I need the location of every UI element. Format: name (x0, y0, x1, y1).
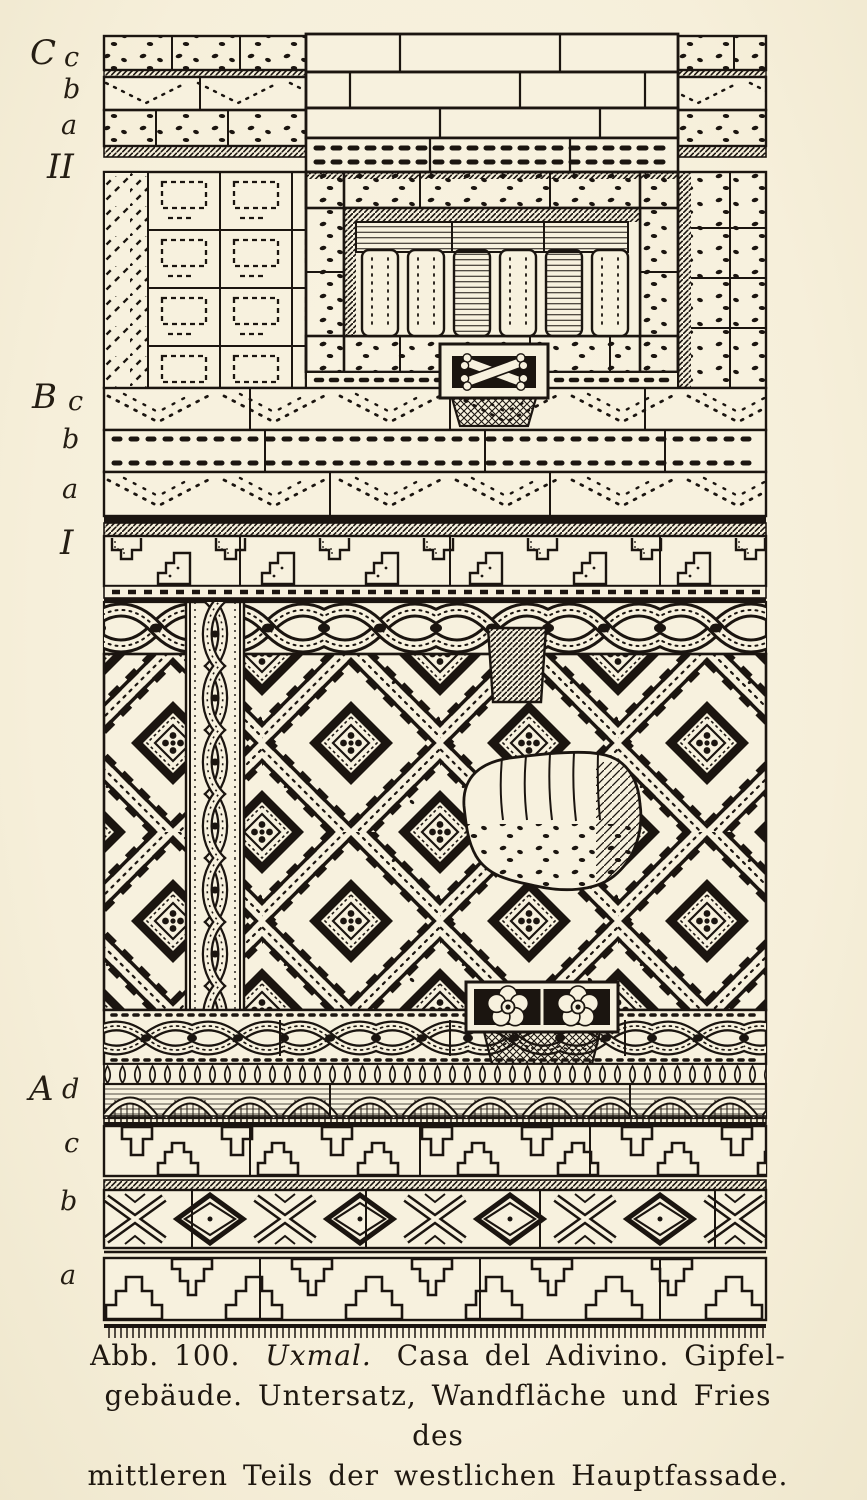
band-B (104, 388, 766, 536)
zone-label-I: I (60, 526, 73, 560)
ashlar-cornice (306, 34, 678, 172)
caption-line-1: Abb. 100. Uxmal. Casa del Adivino. Gipfe… (80, 1336, 796, 1376)
braided-column (186, 602, 244, 1010)
stone-tenon (488, 628, 546, 702)
book-page: C c b a II B c b a I A d c b a (0, 0, 867, 1500)
band-A-a (104, 1258, 766, 1320)
zone-label-Ac: c (64, 1130, 79, 1157)
crossed-bones-relief (440, 344, 548, 426)
band-II (104, 172, 766, 388)
caption-line-1-rest: Casa del Adivino. Gipfel- (397, 1339, 786, 1372)
guilloche-moulding (104, 1010, 766, 1064)
niche-lintel (356, 222, 628, 252)
zone-label-Ad: d (62, 1076, 79, 1103)
caption-site-name: Uxmal. (265, 1339, 372, 1372)
zone-label-Cc: c (64, 44, 79, 71)
caption-line-3: mittleren Teils der westlichen Hauptfass… (80, 1456, 796, 1496)
zone-label-C: C (30, 36, 56, 70)
zone-label-Ba: a (62, 476, 78, 503)
band-C (104, 34, 766, 172)
zone-label-Cb: b (63, 76, 80, 103)
zone-label-Bc: c (68, 388, 83, 415)
zone-label-A: A (29, 1072, 54, 1106)
caption-line-2: gebäude. Untersatz, Wandfläche und Fries… (80, 1376, 796, 1456)
band-A-b (104, 1180, 766, 1252)
flower-plaque (466, 982, 618, 1064)
figure-caption: Abb. 100. Uxmal. Casa del Adivino. Gipfe… (80, 1336, 796, 1496)
zone-label-Ca: a (61, 112, 77, 139)
engraving-figure (100, 26, 800, 1342)
zone-label-II: II (47, 150, 74, 184)
band-A-d-arches (104, 1064, 766, 1124)
band-A-c (104, 1122, 766, 1176)
caption-figure-number: Abb. 100. (90, 1339, 240, 1372)
zone-label-Bb: b (62, 426, 79, 453)
zone-label-B: B (32, 380, 57, 414)
band-I (104, 536, 766, 602)
zone-label-Aa: a (60, 1262, 76, 1289)
zone-label-Ab: b (60, 1188, 77, 1215)
